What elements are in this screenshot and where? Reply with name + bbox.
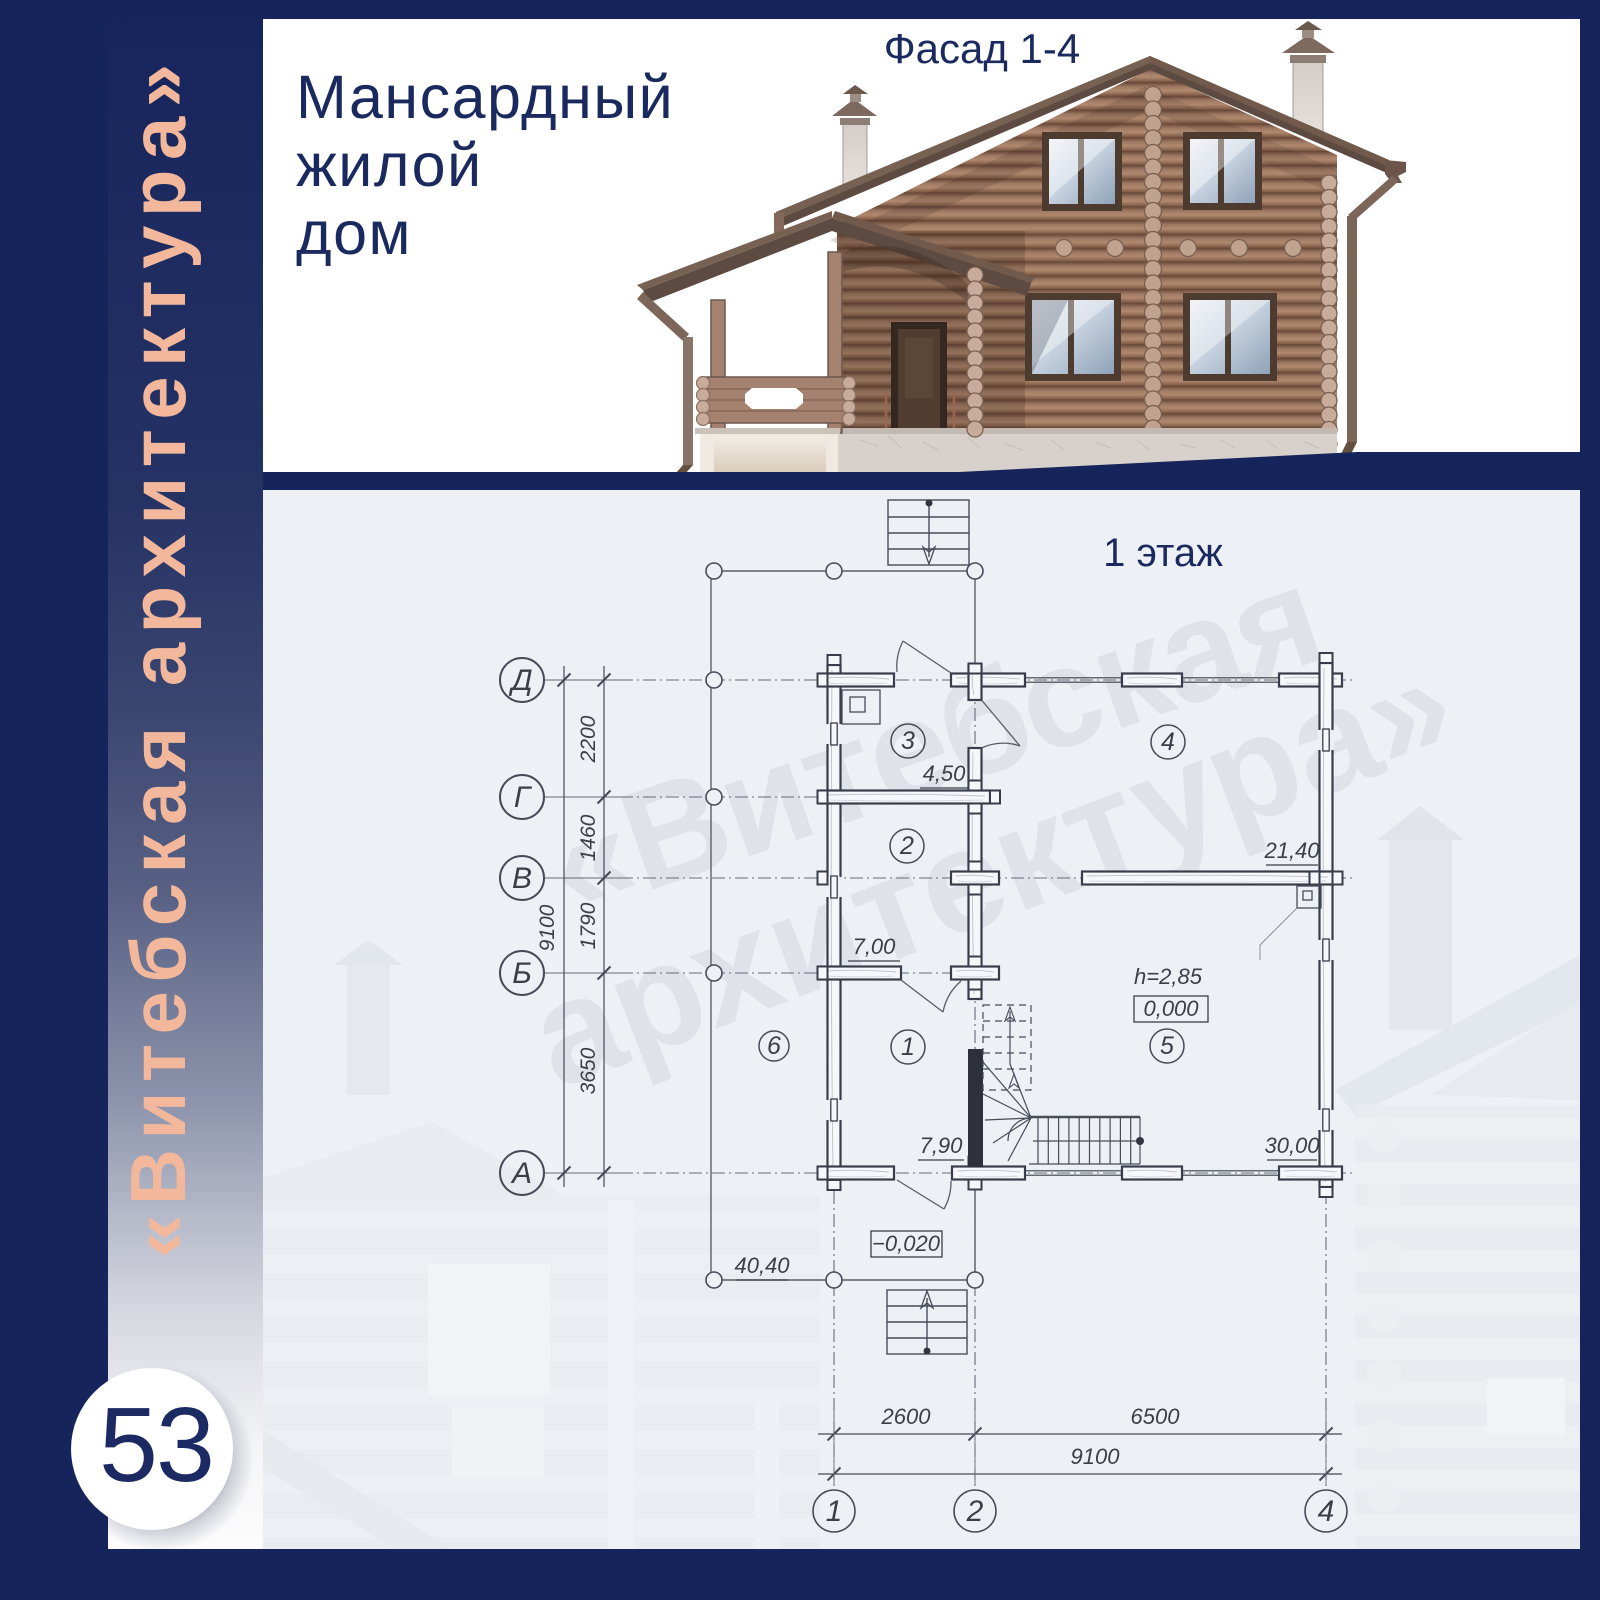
svg-text:В: В (512, 862, 532, 895)
svg-text:40,40: 40,40 (734, 1253, 790, 1278)
svg-text:9100: 9100 (536, 904, 559, 951)
svg-text:Б: Б (512, 957, 532, 990)
svg-text:53: 53 (99, 1386, 213, 1504)
svg-text:6: 6 (767, 1032, 781, 1060)
svg-text:0,000: 0,000 (1143, 996, 1199, 1021)
svg-text:3650: 3650 (577, 1047, 600, 1094)
svg-text:2200: 2200 (577, 715, 600, 763)
svg-text:Д: Д (508, 664, 532, 697)
svg-text:1460: 1460 (577, 814, 600, 861)
svg-text:6500: 6500 (1131, 1404, 1181, 1429)
svg-text:h=2,85: h=2,85 (1134, 964, 1203, 989)
svg-text:7,90: 7,90 (920, 1133, 964, 1158)
svg-text:Г: Г (514, 781, 533, 814)
svg-text:4,50: 4,50 (923, 761, 967, 786)
svg-text:1790: 1790 (577, 902, 600, 949)
svg-text:4: 4 (1161, 728, 1175, 756)
svg-text:А: А (510, 1157, 532, 1190)
svg-text:3: 3 (901, 727, 915, 755)
svg-text:Фасад 1-4: Фасад 1-4 (884, 25, 1081, 72)
svg-text:30,00: 30,00 (1264, 1133, 1320, 1158)
svg-text:5: 5 (1160, 1032, 1174, 1060)
svg-text:4: 4 (1318, 1495, 1335, 1528)
svg-text:2600: 2600 (881, 1404, 932, 1429)
svg-text:2: 2 (966, 1495, 984, 1528)
svg-text:9100: 9100 (1071, 1444, 1121, 1469)
svg-text:дом: дом (296, 199, 412, 267)
svg-text:1: 1 (901, 1033, 915, 1061)
svg-text:1: 1 (826, 1495, 843, 1528)
svg-text:жилой: жилой (296, 131, 483, 199)
svg-text:−0,020: −0,020 (872, 1231, 941, 1256)
svg-text:Мансардный: Мансардный (296, 63, 674, 131)
svg-text:1 этаж: 1 этаж (1103, 531, 1223, 575)
svg-text:2: 2 (899, 832, 914, 860)
svg-text:7,00: 7,00 (853, 934, 897, 959)
svg-text:21,40: 21,40 (1263, 838, 1320, 863)
svg-text:«Витебская архитектура»: «Витебская архитектура» (114, 55, 202, 1258)
